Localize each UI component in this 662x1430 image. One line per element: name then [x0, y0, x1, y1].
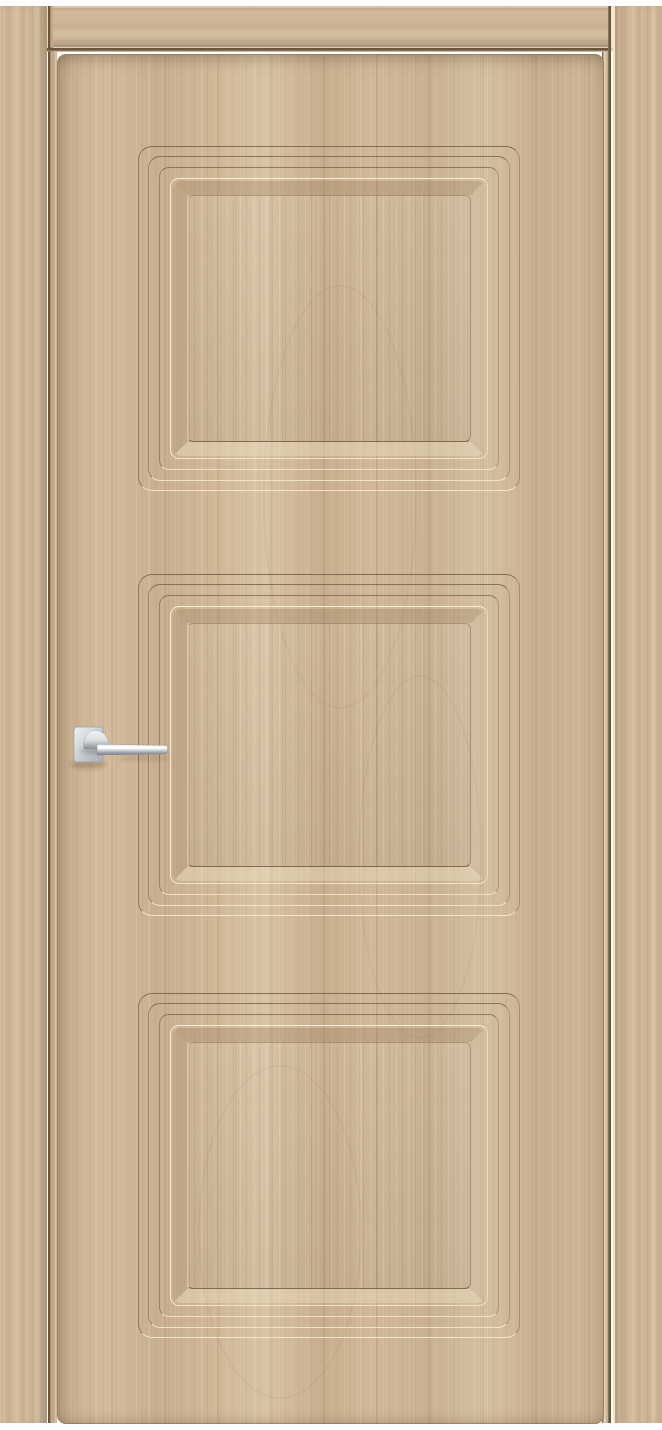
door-panel-3	[138, 993, 520, 1338]
door-casing-right	[613, 6, 662, 1423]
product-photo	[0, 0, 662, 1430]
door-panel-1	[138, 146, 520, 491]
door-panel-2	[138, 574, 520, 916]
door-casing-left	[0, 6, 47, 1423]
lever-handle	[64, 714, 180, 774]
panel-field	[187, 623, 471, 867]
handle-lever	[97, 744, 168, 755]
door-casing-top	[47, 6, 613, 47]
panel-field	[187, 1042, 471, 1289]
panel-field	[187, 195, 471, 442]
frame-seam-right	[608, 6, 613, 1423]
lever-highlight	[98, 746, 164, 749]
lever-cast-shadow	[118, 755, 170, 760]
